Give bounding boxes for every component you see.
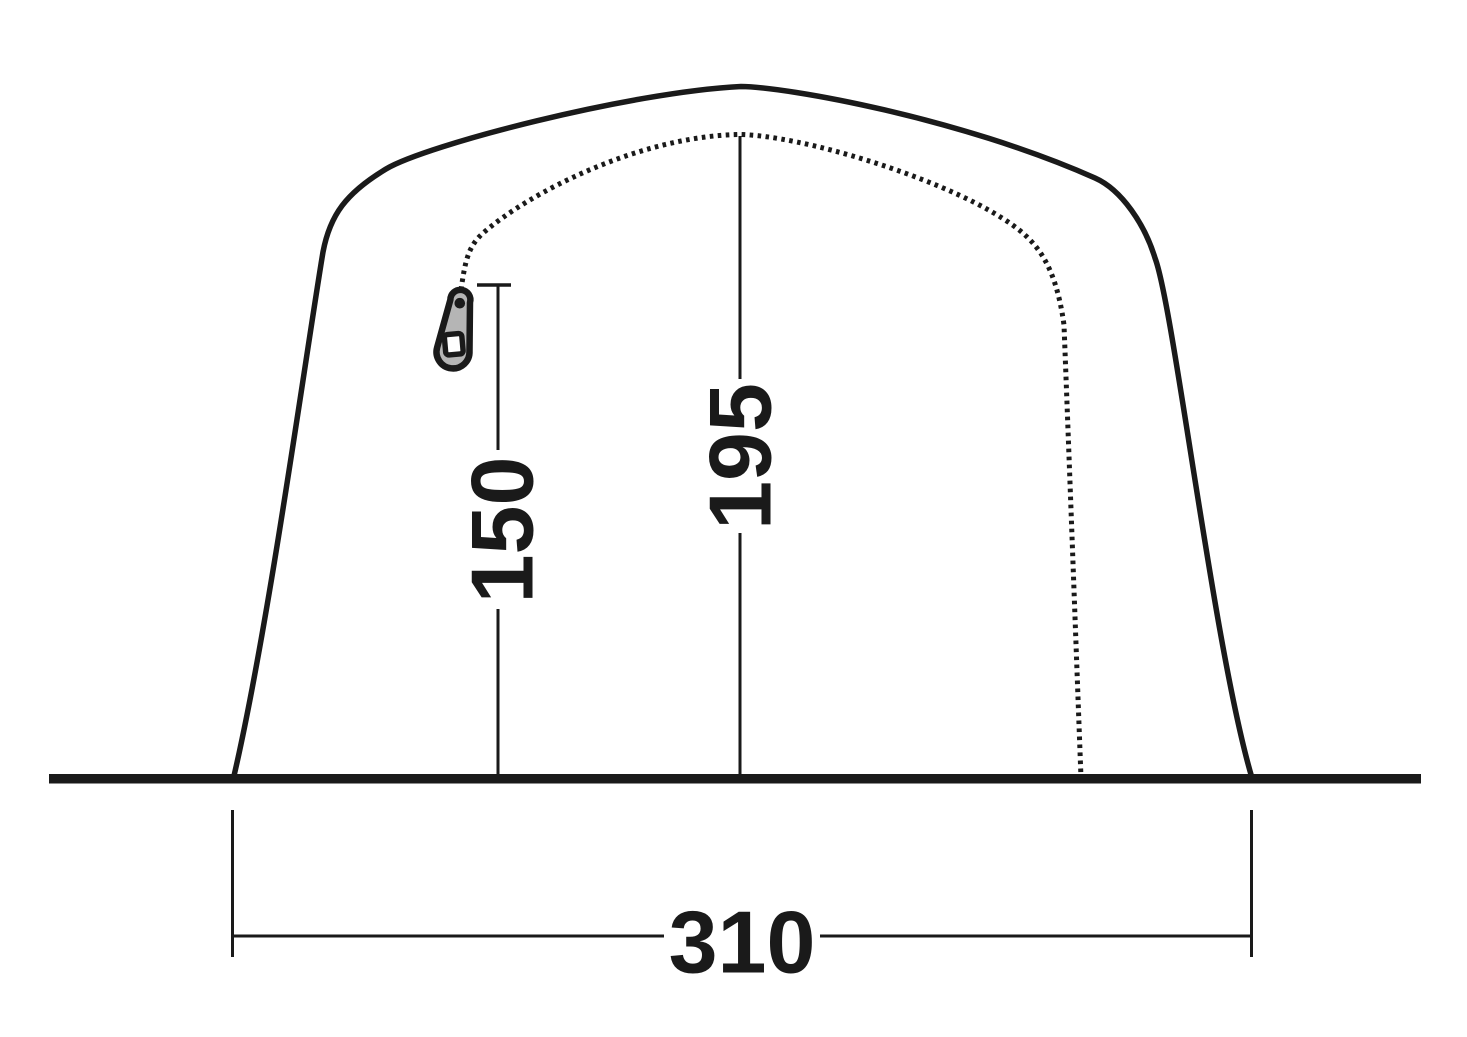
- svg-text:150: 150: [453, 457, 552, 604]
- svg-text:310: 310: [669, 893, 816, 992]
- svg-text:195: 195: [691, 383, 790, 530]
